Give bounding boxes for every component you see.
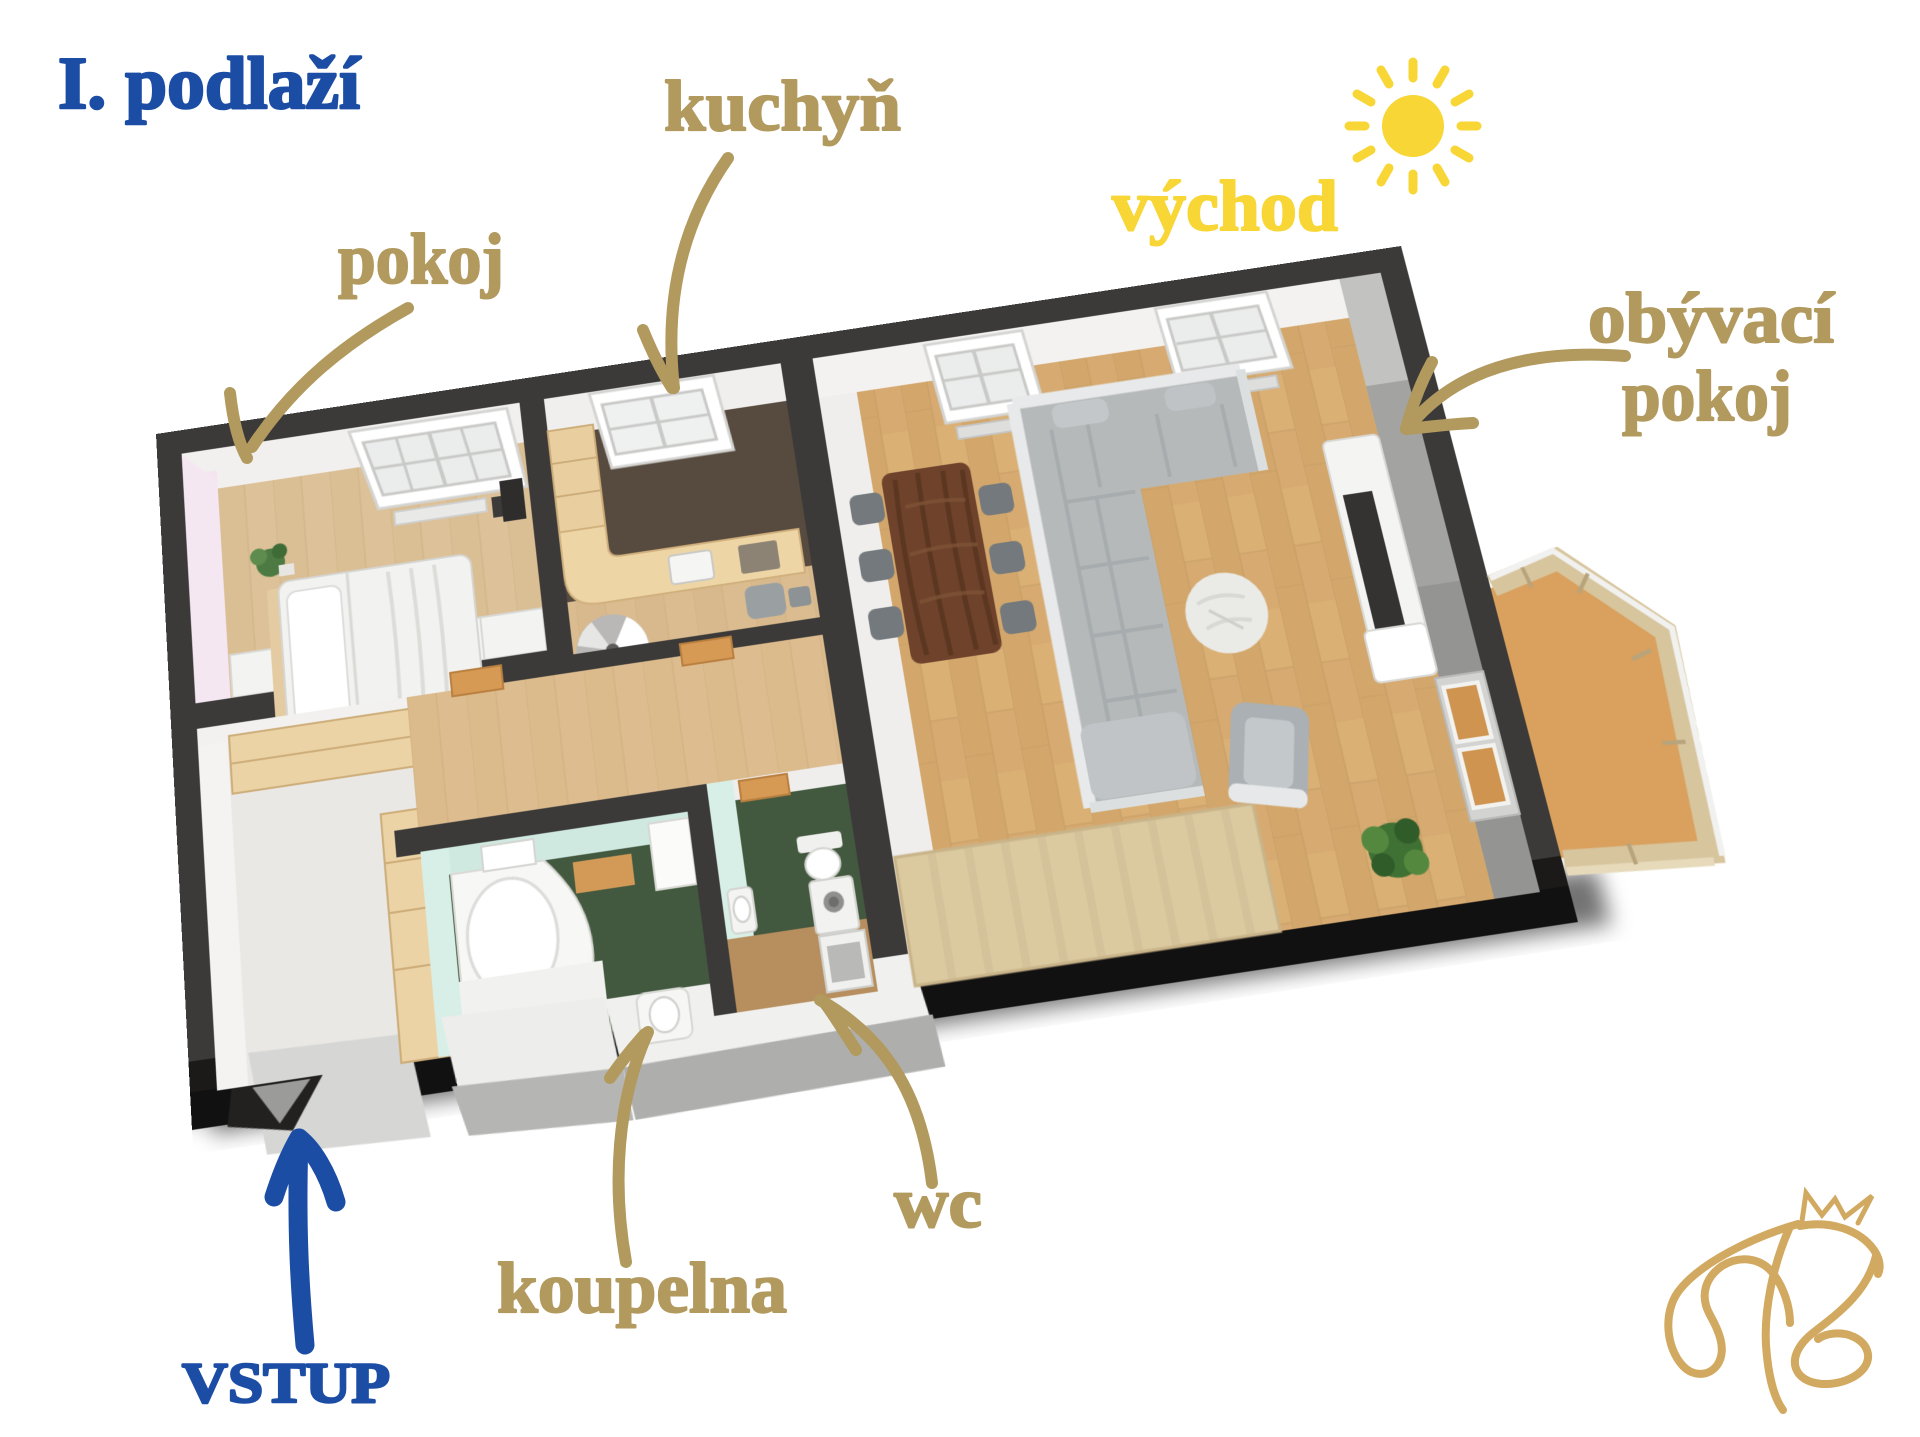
svg-text:pokoj: pokoj (338, 219, 504, 299)
svg-text:wc: wc (894, 1163, 982, 1243)
svg-text:kuchyň: kuchyň (664, 66, 901, 146)
svg-text:VSTUP: VSTUP (182, 1352, 390, 1415)
svg-text:obývací: obývací (1588, 278, 1835, 358)
svg-text:koupelna: koupelna (497, 1248, 787, 1328)
svg-text:východ: východ (1112, 166, 1338, 246)
svg-text:I. podlaží: I. podlaží (58, 43, 361, 125)
svg-text:pokoj: pokoj (1622, 356, 1792, 436)
